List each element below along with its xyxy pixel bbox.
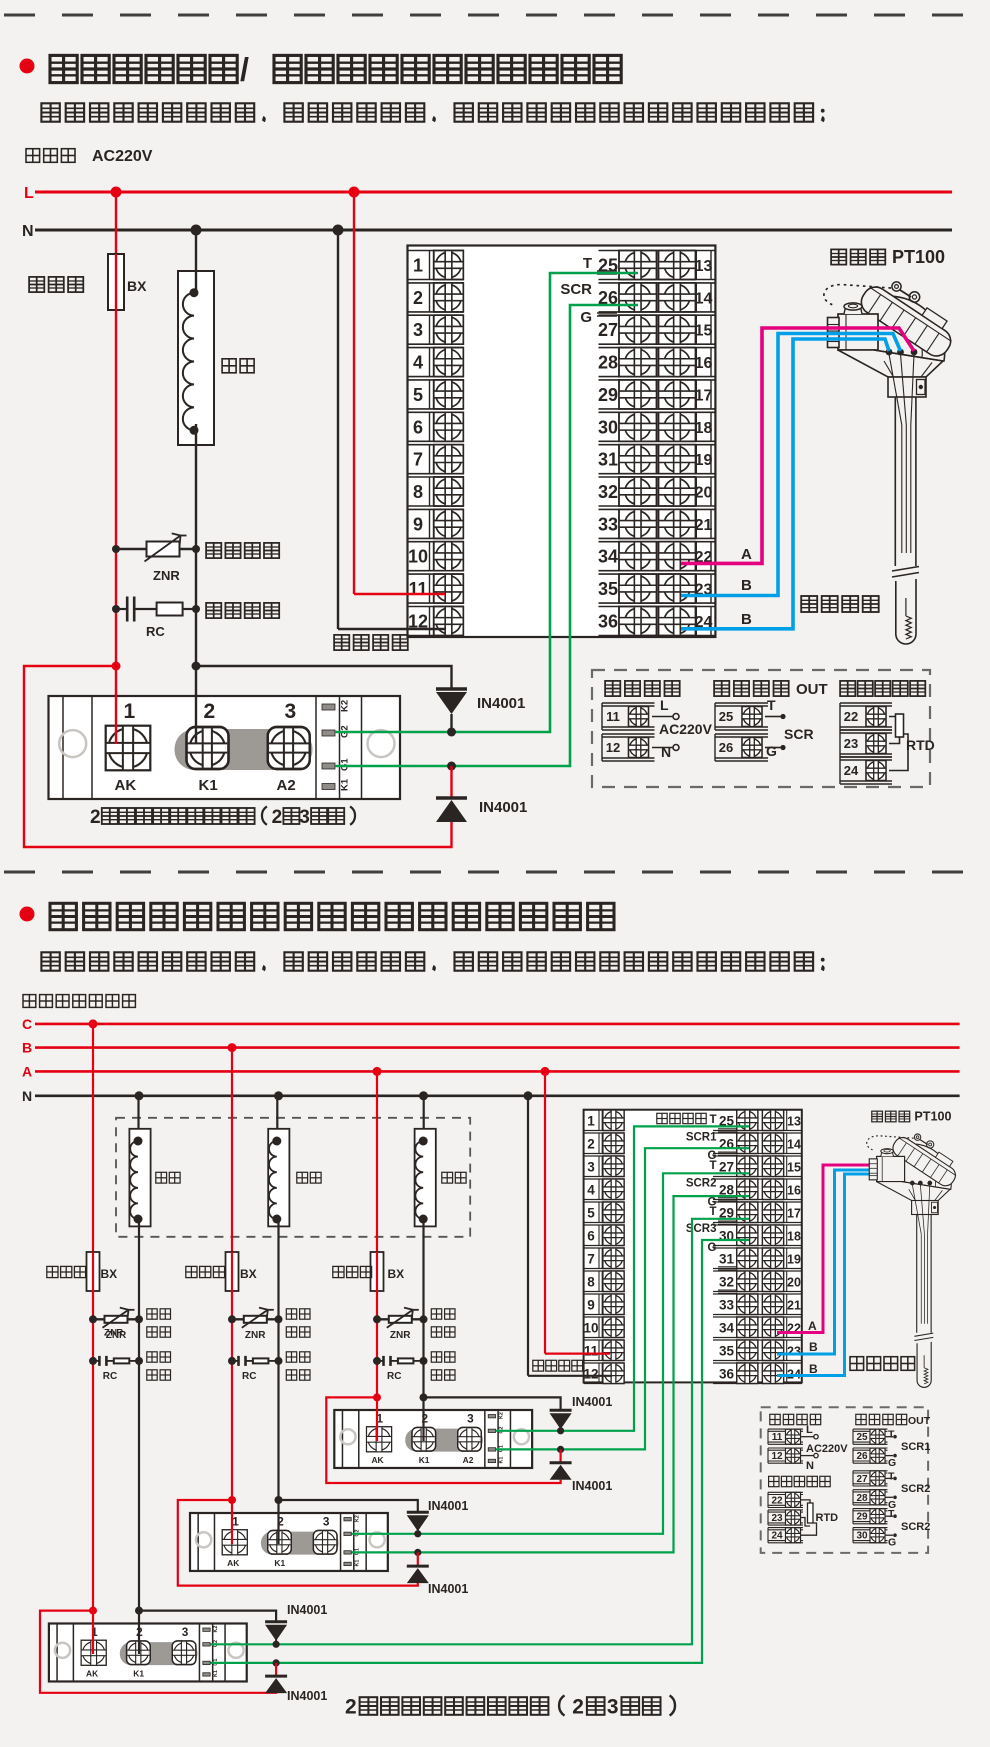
- svg-text:G: G: [888, 1537, 896, 1549]
- svg-text:13: 13: [787, 1114, 801, 1128]
- svg-text:K1: K1: [133, 1668, 144, 1678]
- svg-text:N: N: [661, 744, 671, 760]
- svg-text:19: 19: [787, 1252, 801, 1266]
- svg-text:12: 12: [606, 740, 620, 755]
- svg-text:35: 35: [598, 579, 618, 599]
- svg-text:12: 12: [583, 1366, 598, 1381]
- svg-text:AC220V: AC220V: [92, 148, 153, 165]
- svg-text:12: 12: [771, 1451, 783, 1462]
- svg-text:AK: AK: [227, 1558, 240, 1568]
- svg-text:31: 31: [719, 1251, 735, 1266]
- svg-text:5: 5: [587, 1205, 595, 1220]
- svg-text:33: 33: [598, 514, 618, 534]
- svg-text:13: 13: [695, 258, 713, 275]
- svg-text:BX: BX: [127, 278, 147, 294]
- svg-text:BX: BX: [101, 1267, 118, 1281]
- svg-text:T: T: [709, 1160, 716, 1172]
- svg-text:23: 23: [844, 736, 858, 751]
- svg-text:T: T: [767, 697, 776, 713]
- svg-text:2: 2: [204, 700, 216, 723]
- svg-text:G: G: [766, 743, 777, 759]
- svg-text:RC: RC: [242, 1371, 256, 1382]
- svg-text:7: 7: [587, 1251, 595, 1266]
- svg-text:PT100: PT100: [892, 247, 945, 267]
- svg-text:K1: K1: [340, 778, 351, 791]
- svg-text:34: 34: [719, 1320, 735, 1335]
- svg-text:A: A: [808, 1319, 817, 1333]
- svg-text:25: 25: [856, 1432, 868, 1443]
- svg-text:3: 3: [182, 1625, 189, 1639]
- svg-text:B: B: [741, 577, 752, 594]
- svg-text:27: 27: [856, 1474, 868, 1485]
- svg-text:11: 11: [408, 579, 427, 599]
- svg-text:IN4001: IN4001: [428, 1499, 468, 1513]
- svg-text:2: 2: [572, 1696, 584, 1719]
- svg-text:IN4001: IN4001: [572, 1479, 612, 1493]
- svg-text:A: A: [22, 1063, 32, 1079]
- svg-text:18: 18: [787, 1229, 801, 1243]
- svg-text:N: N: [22, 223, 34, 240]
- svg-text:ZNR: ZNR: [153, 568, 180, 583]
- svg-text:3: 3: [607, 1696, 619, 1719]
- svg-text:OUT: OUT: [796, 681, 828, 698]
- svg-text:9: 9: [413, 514, 423, 534]
- svg-text:16: 16: [695, 355, 713, 372]
- svg-text:SCR: SCR: [784, 726, 814, 742]
- svg-text:21: 21: [787, 1298, 801, 1312]
- svg-text:T: T: [888, 1429, 895, 1441]
- svg-text:A2: A2: [277, 777, 296, 794]
- svg-text:K1: K1: [354, 1560, 360, 1567]
- svg-text:AC220V: AC220V: [659, 721, 713, 737]
- svg-text:36: 36: [719, 1366, 735, 1381]
- svg-text:AK: AK: [371, 1455, 384, 1465]
- svg-text:C: C: [22, 1016, 32, 1032]
- svg-text:10: 10: [408, 547, 428, 567]
- svg-text:G1: G1: [340, 758, 351, 771]
- svg-text:6: 6: [413, 417, 423, 437]
- svg-text:11: 11: [584, 1343, 599, 1358]
- svg-text:BX: BX: [240, 1267, 257, 1281]
- svg-text:L: L: [24, 185, 34, 202]
- svg-text:3: 3: [467, 1411, 474, 1425]
- svg-text:3: 3: [587, 1159, 595, 1174]
- svg-text:11: 11: [772, 1432, 783, 1443]
- svg-text:22: 22: [844, 709, 858, 724]
- svg-text:K2: K2: [354, 1515, 360, 1522]
- svg-text:RC: RC: [103, 1371, 117, 1382]
- svg-text:K2: K2: [340, 700, 351, 712]
- svg-text:3: 3: [413, 320, 423, 340]
- svg-text:SCR: SCR: [560, 281, 592, 298]
- svg-text:5: 5: [413, 385, 423, 405]
- svg-text:ZNR: ZNR: [390, 1330, 411, 1341]
- svg-text:29: 29: [598, 385, 618, 405]
- svg-text:31: 31: [598, 450, 618, 470]
- svg-text:K1: K1: [499, 1457, 505, 1464]
- svg-text:PT100: PT100: [914, 1110, 951, 1124]
- svg-text:AC220V: AC220V: [806, 1443, 848, 1455]
- svg-text:3: 3: [285, 700, 297, 723]
- svg-text:B: B: [809, 1340, 818, 1354]
- svg-text:25: 25: [719, 709, 733, 724]
- svg-text:6: 6: [587, 1228, 595, 1243]
- svg-text:RTD: RTD: [816, 1512, 839, 1524]
- svg-text:A2: A2: [463, 1455, 474, 1465]
- svg-text:26: 26: [856, 1451, 868, 1462]
- svg-text:/: /: [240, 52, 249, 88]
- svg-text:SCR1: SCR1: [901, 1441, 930, 1453]
- svg-text:IN4001: IN4001: [477, 695, 525, 712]
- svg-text:14: 14: [695, 290, 713, 307]
- svg-text:N: N: [22, 1088, 32, 1104]
- svg-text:8: 8: [413, 482, 423, 502]
- svg-text:20: 20: [787, 1275, 801, 1289]
- svg-text:ZNR: ZNR: [106, 1330, 127, 1341]
- svg-text:IN4001: IN4001: [572, 1395, 612, 1409]
- svg-text:1: 1: [587, 1113, 595, 1128]
- svg-text:OUT: OUT: [908, 1415, 931, 1427]
- svg-text:T: T: [709, 1114, 716, 1126]
- svg-text:B: B: [809, 1362, 818, 1376]
- svg-text:16: 16: [787, 1183, 801, 1197]
- svg-text:2: 2: [345, 1696, 357, 1719]
- svg-text:29: 29: [856, 1512, 868, 1523]
- svg-text:SCR2: SCR2: [686, 1178, 717, 1190]
- svg-text:G: G: [888, 1457, 896, 1469]
- svg-text:3: 3: [299, 807, 310, 828]
- svg-text:11: 11: [606, 709, 620, 724]
- svg-text:27: 27: [719, 1159, 734, 1174]
- svg-text:33: 33: [719, 1297, 735, 1312]
- svg-text:K1: K1: [213, 1670, 219, 1677]
- svg-text:L: L: [806, 1424, 813, 1436]
- svg-text:22: 22: [771, 1495, 783, 1506]
- svg-text:4: 4: [587, 1182, 595, 1197]
- svg-text:2: 2: [272, 807, 283, 828]
- svg-text:2: 2: [587, 1136, 595, 1151]
- svg-text:35: 35: [719, 1343, 735, 1358]
- svg-text:36: 36: [598, 612, 618, 632]
- svg-text:10: 10: [583, 1320, 598, 1335]
- svg-text:RTD: RTD: [906, 737, 935, 753]
- svg-text:K2: K2: [499, 1412, 505, 1419]
- svg-text:27: 27: [598, 320, 618, 340]
- svg-text:2: 2: [413, 288, 423, 308]
- svg-text:32: 32: [719, 1274, 734, 1289]
- svg-text:2: 2: [90, 807, 101, 828]
- svg-text:19: 19: [695, 452, 713, 469]
- svg-text:T: T: [583, 255, 592, 272]
- svg-text:1: 1: [413, 256, 423, 276]
- svg-text:SCR1: SCR1: [686, 1132, 717, 1144]
- svg-text:K2: K2: [213, 1626, 219, 1633]
- svg-text:SCR2: SCR2: [901, 1483, 930, 1495]
- svg-text:RC: RC: [387, 1371, 401, 1382]
- svg-text:17: 17: [787, 1206, 801, 1220]
- svg-text:B: B: [741, 611, 752, 628]
- svg-text:18: 18: [695, 420, 713, 437]
- svg-text:ZNR: ZNR: [245, 1330, 266, 1341]
- svg-text:1: 1: [124, 700, 136, 723]
- svg-text:26: 26: [719, 740, 733, 755]
- svg-text:K1: K1: [274, 1558, 285, 1568]
- svg-text:IN4001: IN4001: [428, 1582, 468, 1596]
- svg-text:7: 7: [413, 450, 423, 470]
- svg-text:1: 1: [232, 1514, 239, 1528]
- svg-text:32: 32: [598, 482, 618, 502]
- svg-text:21: 21: [695, 517, 713, 534]
- svg-text:15: 15: [787, 1160, 801, 1174]
- svg-text:30: 30: [856, 1531, 868, 1542]
- svg-text:T: T: [888, 1508, 895, 1520]
- svg-text:SCR3: SCR3: [686, 1223, 717, 1235]
- svg-text:30: 30: [598, 417, 618, 437]
- svg-text:RC: RC: [146, 624, 165, 639]
- svg-text:T: T: [709, 1206, 716, 1218]
- svg-text:IN4001: IN4001: [287, 1689, 327, 1703]
- svg-text:K1: K1: [199, 777, 218, 794]
- svg-text:28: 28: [598, 353, 618, 373]
- svg-text:8: 8: [587, 1274, 595, 1289]
- svg-text:A: A: [741, 546, 752, 563]
- svg-text:K1: K1: [419, 1455, 430, 1465]
- svg-text:14: 14: [787, 1137, 801, 1151]
- svg-text:G: G: [580, 309, 592, 326]
- svg-text:BX: BX: [388, 1267, 405, 1281]
- svg-text:B: B: [22, 1040, 32, 1056]
- svg-text:G: G: [708, 1242, 717, 1254]
- svg-text:23: 23: [771, 1513, 783, 1524]
- svg-text:SCR2: SCR2: [901, 1521, 930, 1533]
- svg-text:24: 24: [771, 1531, 783, 1542]
- svg-text:IN4001: IN4001: [287, 1603, 327, 1617]
- svg-text:IN4001: IN4001: [479, 799, 527, 816]
- svg-text:20: 20: [695, 485, 713, 502]
- svg-text:3: 3: [323, 1514, 330, 1528]
- svg-text:T: T: [888, 1470, 895, 1482]
- svg-text:34: 34: [598, 547, 618, 567]
- svg-text:28: 28: [856, 1493, 868, 1504]
- svg-text:9: 9: [587, 1297, 595, 1312]
- svg-text:4: 4: [413, 353, 423, 373]
- svg-text:24: 24: [844, 763, 859, 778]
- svg-text:17: 17: [695, 387, 713, 404]
- svg-text:15: 15: [695, 323, 713, 340]
- svg-text:AK: AK: [86, 1668, 99, 1678]
- svg-text:23: 23: [787, 1344, 801, 1358]
- svg-text:L: L: [660, 697, 669, 713]
- svg-text:N: N: [806, 1460, 814, 1472]
- svg-text:AK: AK: [115, 777, 137, 794]
